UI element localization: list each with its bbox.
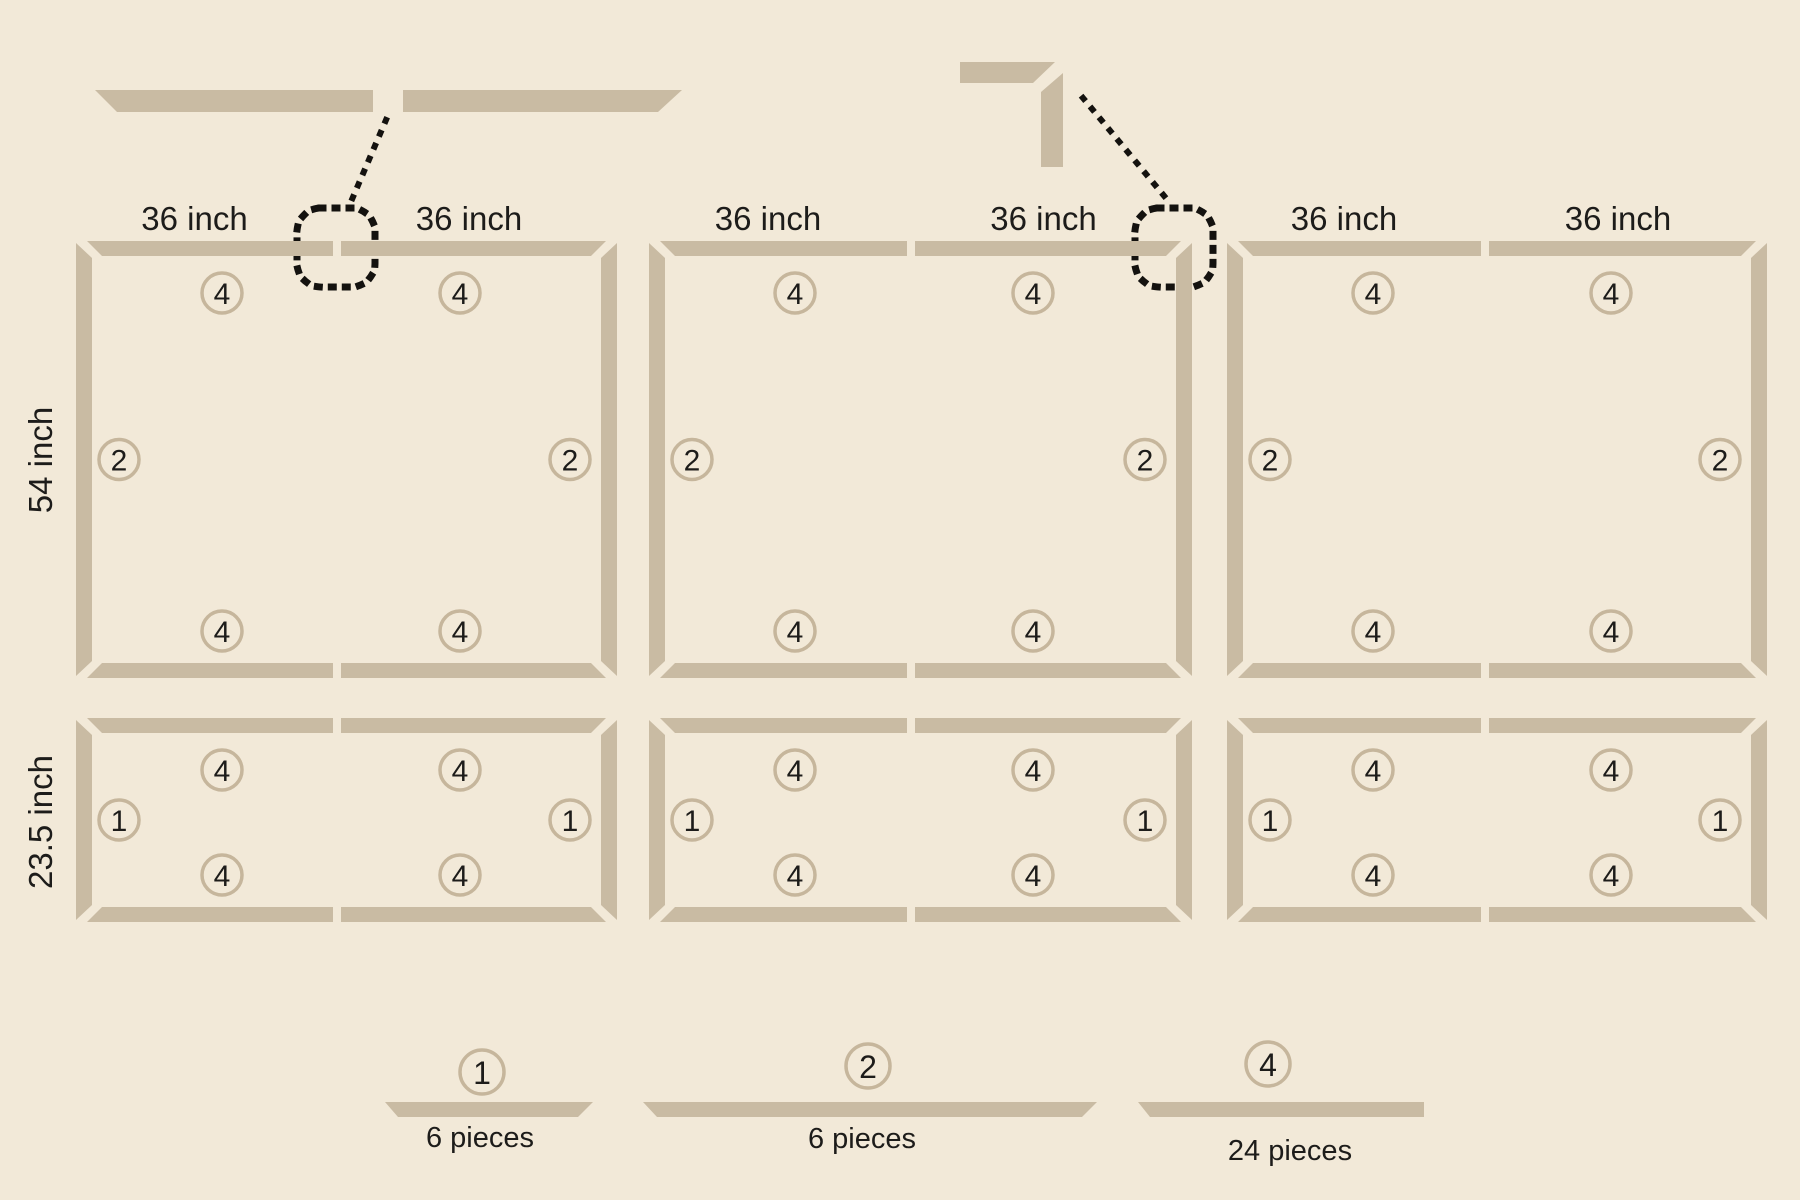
bottom-rail-left: [87, 907, 333, 922]
piece-badge: 4: [775, 611, 815, 651]
bay-width-label: 36 inch: [990, 200, 1096, 237]
right-stile: [601, 720, 617, 920]
piece-badge: 4: [1013, 750, 1053, 790]
cutting-diagram: 36 inch36 inch36 inch36 inch36 inch36 in…: [0, 0, 1800, 1200]
bottom-rail-left: [660, 663, 907, 678]
piece-badge-number: 4: [1603, 278, 1620, 311]
piece-badge: 4: [440, 273, 480, 313]
legend-board-rail: [1138, 1102, 1424, 1117]
piece-badge: 4: [1013, 855, 1053, 895]
sample-board-right: [403, 90, 682, 112]
frame-row1-col2: [649, 241, 1192, 678]
piece-badge: 4: [1353, 273, 1393, 313]
piece-badge-number: 1: [1712, 805, 1729, 838]
legend-count-label: 24 pieces: [1228, 1135, 1352, 1167]
piece-badge-number: 1: [111, 805, 128, 838]
piece-badge: 4: [1353, 855, 1393, 895]
piece-badge: 4: [1353, 750, 1393, 790]
piece-badge-number: 4: [1025, 860, 1042, 893]
legend-board-short: [385, 1102, 593, 1117]
piece-badge: 2: [550, 440, 590, 480]
piece-badge-number: 2: [562, 445, 579, 478]
right-stile: [1176, 720, 1192, 920]
top-rail-right: [1489, 718, 1756, 733]
row1-height-label: 54 inch: [22, 407, 59, 513]
piece-badge: 4: [1013, 611, 1053, 651]
legend: 1 6 pieces 2 6 pieces 4 24 pieces: [385, 1042, 1424, 1167]
bay-width-label: 36 inch: [141, 200, 247, 237]
butt-joint-sample: [95, 90, 682, 112]
piece-badge-number: 4: [214, 616, 231, 649]
callout-leader-butt-joint: [350, 120, 386, 204]
legend-count-label: 6 pieces: [808, 1123, 916, 1155]
piece-badge: 1: [1250, 800, 1290, 840]
top-rail-right: [341, 718, 606, 733]
piece-badge: 4: [440, 750, 480, 790]
top-rail-left: [87, 241, 333, 256]
piece-badge: 4: [1013, 273, 1053, 313]
piece-badge-number: 1: [562, 805, 579, 838]
piece-badges: 444422444422444422444411444411444411: [99, 273, 1740, 895]
legend-item-long-stile: 2 6 pieces: [643, 1044, 1097, 1155]
piece-badge-number: 4: [1025, 278, 1042, 311]
left-stile: [649, 243, 665, 676]
bottom-rail-right: [341, 907, 606, 922]
piece-badge: 4: [202, 750, 242, 790]
piece-badge-number: 1: [1137, 805, 1154, 838]
piece-badge-number: 1: [684, 805, 701, 838]
top-rail-right: [1489, 241, 1756, 256]
bottom-rail-right: [1489, 663, 1756, 678]
bay-width-label: 36 inch: [416, 200, 522, 237]
diagram-canvas: 36 inch36 inch36 inch36 inch36 inch36 in…: [0, 0, 1800, 1200]
piece-badge: 2: [1125, 440, 1165, 480]
legend-badge-number: 1: [473, 1055, 491, 1091]
top-rail-left: [1238, 241, 1481, 256]
right-stile: [1751, 720, 1767, 920]
piece-badge-number: 4: [452, 755, 469, 788]
piece-badge: 2: [99, 440, 139, 480]
piece-badge-number: 4: [787, 278, 804, 311]
piece-badge-number: 4: [214, 860, 231, 893]
bottom-rail-left: [87, 663, 333, 678]
piece-badge: 4: [1591, 611, 1631, 651]
piece-badge-number: 1: [1262, 805, 1279, 838]
piece-badge-number: 4: [1603, 860, 1620, 893]
bottom-rail-right: [915, 907, 1181, 922]
top-rail-left: [660, 241, 907, 256]
top-rail-right: [915, 718, 1181, 733]
piece-badge-number: 4: [452, 278, 469, 311]
right-stile: [601, 243, 617, 676]
left-stile: [649, 720, 665, 920]
frame-row2-col3: [1227, 718, 1767, 922]
sample-corner-vertical-board: [1041, 73, 1063, 167]
bottom-rail-left: [1238, 907, 1481, 922]
frame-row1-col1: [76, 241, 617, 678]
bottom-rail-right: [1489, 907, 1756, 922]
piece-badge: 2: [1250, 440, 1290, 480]
piece-badge: 4: [440, 855, 480, 895]
legend-board-long: [643, 1102, 1097, 1117]
piece-badge: 4: [775, 855, 815, 895]
piece-badge: 1: [1125, 800, 1165, 840]
legend-item-short-stile: 1 6 pieces: [385, 1050, 593, 1154]
piece-badge-number: 4: [1603, 616, 1620, 649]
top-rail-left: [660, 718, 907, 733]
piece-badge: 1: [1700, 800, 1740, 840]
piece-badge: 2: [672, 440, 712, 480]
sample-board-left: [95, 90, 373, 112]
piece-badge-number: 4: [787, 616, 804, 649]
piece-badge-number: 4: [1025, 755, 1042, 788]
sample-corner-horizontal-board: [960, 62, 1055, 83]
bay-width-label: 36 inch: [1565, 200, 1671, 237]
piece-badge: 4: [1591, 273, 1631, 313]
bottom-rail-left: [660, 907, 907, 922]
piece-badge-number: 2: [111, 445, 128, 478]
piece-badge-number: 4: [452, 616, 469, 649]
piece-badge-number: 2: [1137, 445, 1154, 478]
piece-badge: 4: [775, 273, 815, 313]
legend-badge-number: 2: [859, 1049, 877, 1085]
top-rail-right: [341, 241, 606, 256]
piece-badge: 4: [440, 611, 480, 651]
piece-badge-number: 2: [1712, 445, 1729, 478]
left-stile: [1227, 720, 1243, 920]
top-rail-left: [87, 718, 333, 733]
piece-badge-number: 2: [1262, 445, 1279, 478]
piece-badge: 4: [775, 750, 815, 790]
bottom-rail-left: [1238, 663, 1481, 678]
piece-badge: 4: [202, 855, 242, 895]
left-stile: [76, 720, 92, 920]
piece-badge-number: 4: [787, 755, 804, 788]
piece-badge-number: 4: [1365, 860, 1382, 893]
piece-badge: 2: [1700, 440, 1740, 480]
piece-badge-number: 4: [787, 860, 804, 893]
bottom-rail-right: [915, 663, 1181, 678]
frame-row1-col3: [1227, 241, 1767, 678]
piece-badge: 1: [672, 800, 712, 840]
frame-row2-col2: [649, 718, 1192, 922]
frames: [76, 241, 1767, 922]
piece-badge-number: 4: [214, 278, 231, 311]
left-stile: [1227, 243, 1243, 676]
piece-badge-number: 4: [1365, 755, 1382, 788]
piece-badge-number: 4: [1025, 616, 1042, 649]
legend-item-rail: 4 24 pieces: [1138, 1042, 1424, 1167]
piece-badge: 4: [1591, 855, 1631, 895]
piece-badge: 4: [1591, 750, 1631, 790]
piece-badge: 1: [550, 800, 590, 840]
top-rail-left: [1238, 718, 1481, 733]
row2-height-label: 23.5 inch: [22, 755, 59, 889]
top-rail-right: [915, 241, 1181, 256]
piece-badge: 1: [99, 800, 139, 840]
legend-badge-number: 4: [1259, 1047, 1277, 1083]
piece-badge: 4: [202, 611, 242, 651]
callout-leader-corner-joint: [1083, 98, 1170, 203]
piece-badge-number: 4: [452, 860, 469, 893]
piece-badge: 4: [202, 273, 242, 313]
piece-badge-number: 2: [684, 445, 701, 478]
right-stile: [1751, 243, 1767, 676]
bay-width-label: 36 inch: [1291, 200, 1397, 237]
legend-count-label: 6 pieces: [426, 1122, 534, 1154]
piece-badge-number: 4: [1365, 616, 1382, 649]
piece-badge: 4: [1353, 611, 1393, 651]
bottom-rail-right: [341, 663, 606, 678]
frame-row2-col1: [76, 718, 617, 922]
right-stile: [1176, 243, 1192, 676]
left-stile: [76, 243, 92, 676]
piece-badge-number: 4: [1603, 755, 1620, 788]
corner-joint-sample: [960, 62, 1063, 167]
piece-badge-number: 4: [1365, 278, 1382, 311]
bay-width-label: 36 inch: [715, 200, 821, 237]
piece-badge-number: 4: [214, 755, 231, 788]
